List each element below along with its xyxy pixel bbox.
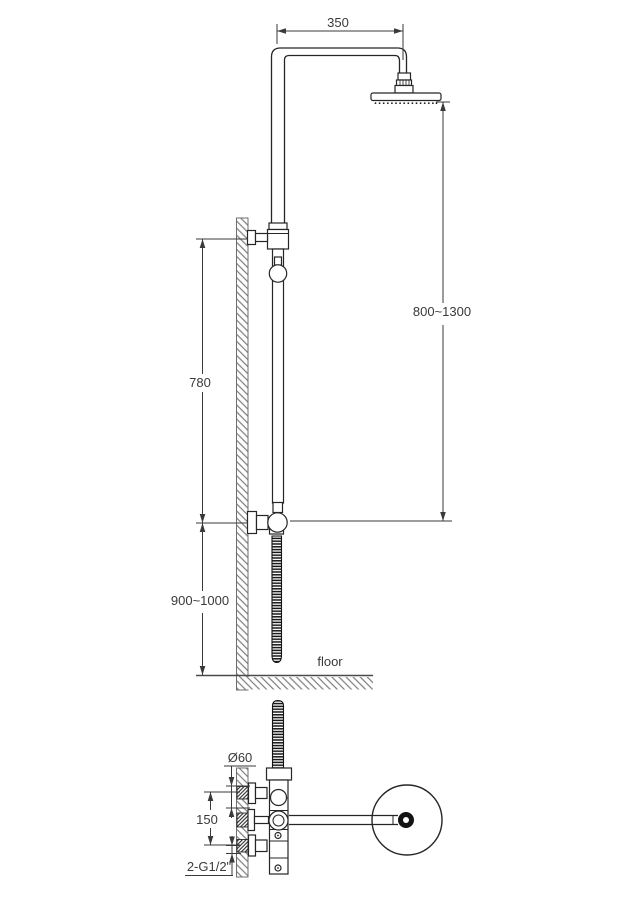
slide-bar xyxy=(269,249,286,503)
dim-head-height-label: 800~1300 xyxy=(413,304,471,319)
dimension-thread-spec: 2-G1/2" xyxy=(185,836,241,876)
dim-arm-reach-label: 350 xyxy=(327,15,349,30)
shower-installation-diagram: 350 800~1300 780 900~1 xyxy=(0,0,634,898)
diverter-knob xyxy=(268,513,287,532)
hose-outlet-connector xyxy=(271,790,287,806)
arm-joint-knob xyxy=(269,811,288,830)
technical-drawing-canvas: 350 800~1300 780 900~1 xyxy=(0,0,634,898)
overhead-shower-head xyxy=(371,73,441,104)
upper-wall-bracket xyxy=(248,223,289,249)
valve-body xyxy=(267,768,292,874)
riser-and-shower-arm xyxy=(272,48,407,223)
lower-wall-bracket-diverter xyxy=(248,503,288,535)
side-view: 350 800~1300 780 900~1 xyxy=(171,15,471,690)
hand-shower-hose xyxy=(272,536,282,663)
dim-slide-bar-label: 780 xyxy=(189,375,211,390)
dim-escutcheon-label: Ø60 xyxy=(228,750,253,765)
dim-inlet-spacing-label: 150 xyxy=(196,812,218,827)
wall-inlet-middle xyxy=(237,810,269,831)
plan-shower-arm-and-head xyxy=(289,785,442,855)
dim-thread-spec-label: 2-G1/2" xyxy=(187,859,232,874)
dimension-head-height: 800~1300 xyxy=(290,102,471,521)
dimension-arm-reach: 350 xyxy=(277,15,403,60)
floor-section xyxy=(196,676,373,690)
wall-section xyxy=(237,218,249,690)
slider-stem xyxy=(275,257,282,265)
slider-knob xyxy=(269,265,286,282)
spray-nozzles xyxy=(375,102,438,104)
dim-valve-height-label: 900~1000 xyxy=(171,593,229,608)
shower-head-disc xyxy=(371,93,441,101)
floor-label: floor xyxy=(317,654,343,669)
plan-view: Ø60 150 2-G1/2" xyxy=(185,701,442,878)
